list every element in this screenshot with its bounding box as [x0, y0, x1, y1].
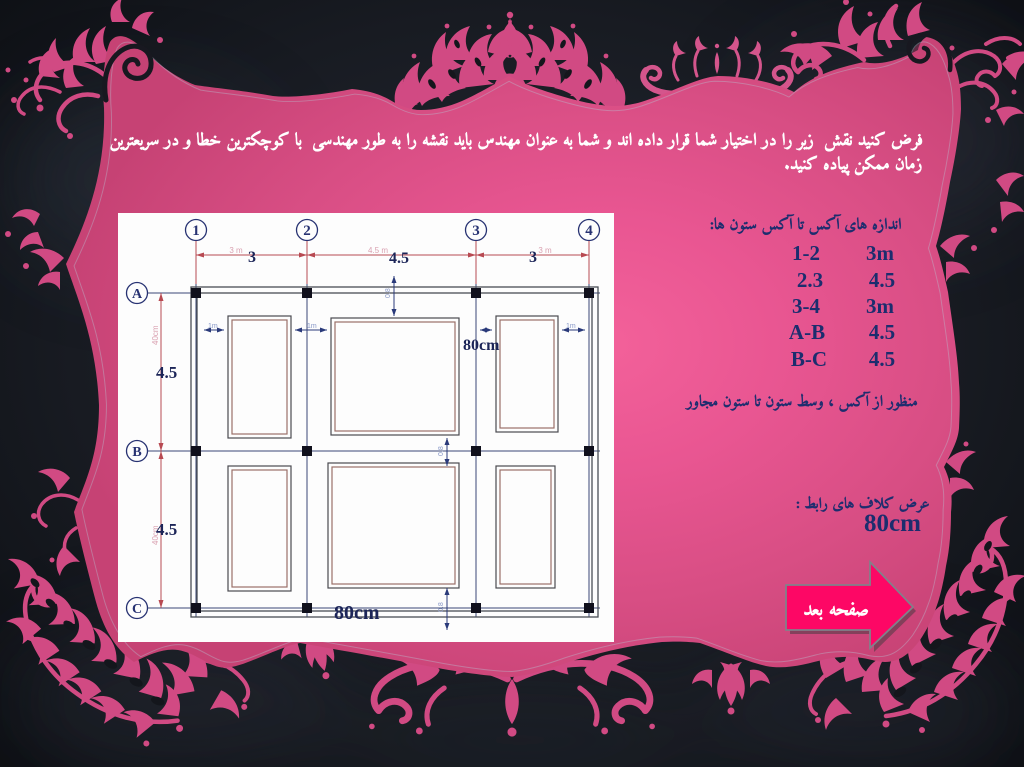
svg-text:3m: 3m: [866, 241, 895, 265]
svg-text:3 m: 3 m: [538, 246, 552, 255]
svg-text:0.8: 0.8: [438, 446, 445, 456]
svg-text:1m: 1m: [208, 323, 218, 330]
svg-text:0.8: 0.8: [385, 288, 392, 298]
svg-text:80cm: 80cm: [334, 602, 380, 624]
svg-text:1: 1: [192, 223, 200, 239]
svg-text:1m: 1m: [307, 323, 317, 330]
svg-text:1-2: 1-2: [792, 241, 820, 265]
svg-text:3m: 3m: [866, 294, 895, 318]
svg-text:3: 3: [248, 249, 256, 266]
svg-text:4.5: 4.5: [869, 320, 895, 344]
svg-text:4.5: 4.5: [156, 520, 177, 539]
svg-text:3 m: 3 m: [229, 246, 243, 255]
svg-text:C: C: [132, 602, 142, 617]
svg-text:4.5 m: 4.5 m: [368, 246, 388, 255]
svg-text:4: 4: [585, 223, 593, 239]
svg-text:80cm: 80cm: [463, 337, 500, 354]
svg-text:A: A: [132, 287, 143, 302]
svg-text:3: 3: [529, 249, 537, 266]
svg-text:3-4: 3-4: [792, 294, 820, 318]
svg-text:4.5: 4.5: [869, 268, 895, 292]
svg-text:4.5: 4.5: [156, 363, 177, 382]
svg-text:2.3: 2.3: [797, 268, 823, 292]
svg-text:B-C: B-C: [791, 347, 827, 371]
svg-text:2: 2: [303, 223, 311, 239]
svg-text:1m: 1m: [566, 323, 576, 330]
svg-text:0.8: 0.8: [438, 602, 445, 612]
svg-text:3: 3: [472, 223, 480, 239]
svg-text:40cm: 40cm: [151, 325, 160, 345]
svg-text:A-B: A-B: [789, 320, 825, 344]
svg-text:80cm: 80cm: [864, 510, 921, 537]
svg-text:4.5: 4.5: [389, 250, 409, 267]
svg-text:4.5: 4.5: [869, 347, 895, 371]
svg-text:B: B: [132, 445, 141, 460]
